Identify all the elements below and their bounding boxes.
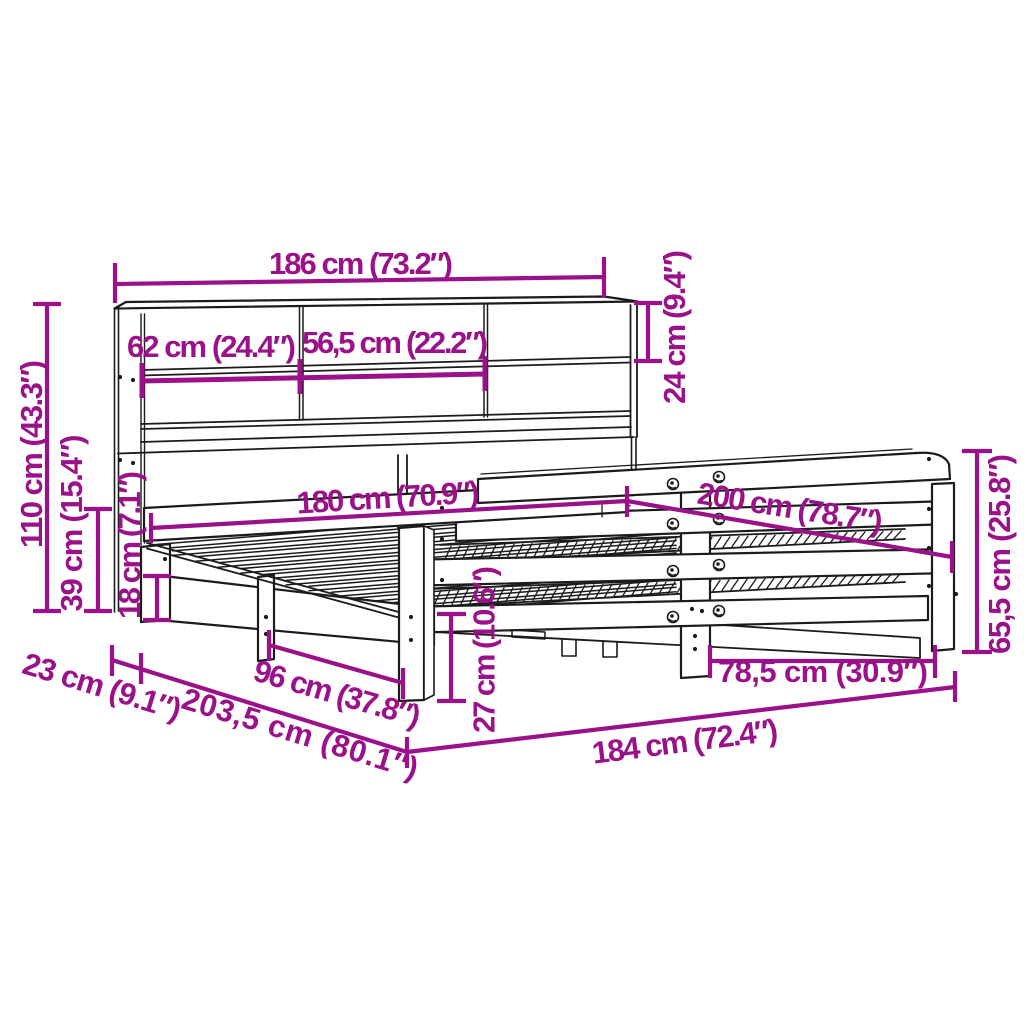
svg-text:65,5 cm (25.8″): 65,5 cm (25.8″): [982, 454, 1017, 654]
svg-text:24 cm (9.4″): 24 cm (9.4″): [657, 250, 692, 404]
svg-text:110 cm (43.3″): 110 cm (43.3″): [14, 360, 49, 548]
svg-text:56,5 cm (22.2″): 56,5 cm (22.2″): [302, 325, 488, 360]
svg-text:18 cm (7.1″): 18 cm (7.1″): [112, 471, 147, 619]
svg-text:27 cm (10.6″): 27 cm (10.6″): [467, 566, 502, 733]
svg-text:78,5 cm (30.9″): 78,5 cm (30.9″): [718, 654, 928, 689]
svg-text:186 cm (73.2″): 186 cm (73.2″): [269, 246, 453, 281]
svg-text:62 cm (24.4″): 62 cm (24.4″): [127, 329, 296, 364]
svg-text:39 cm (15.4″): 39 cm (15.4″): [54, 435, 89, 612]
